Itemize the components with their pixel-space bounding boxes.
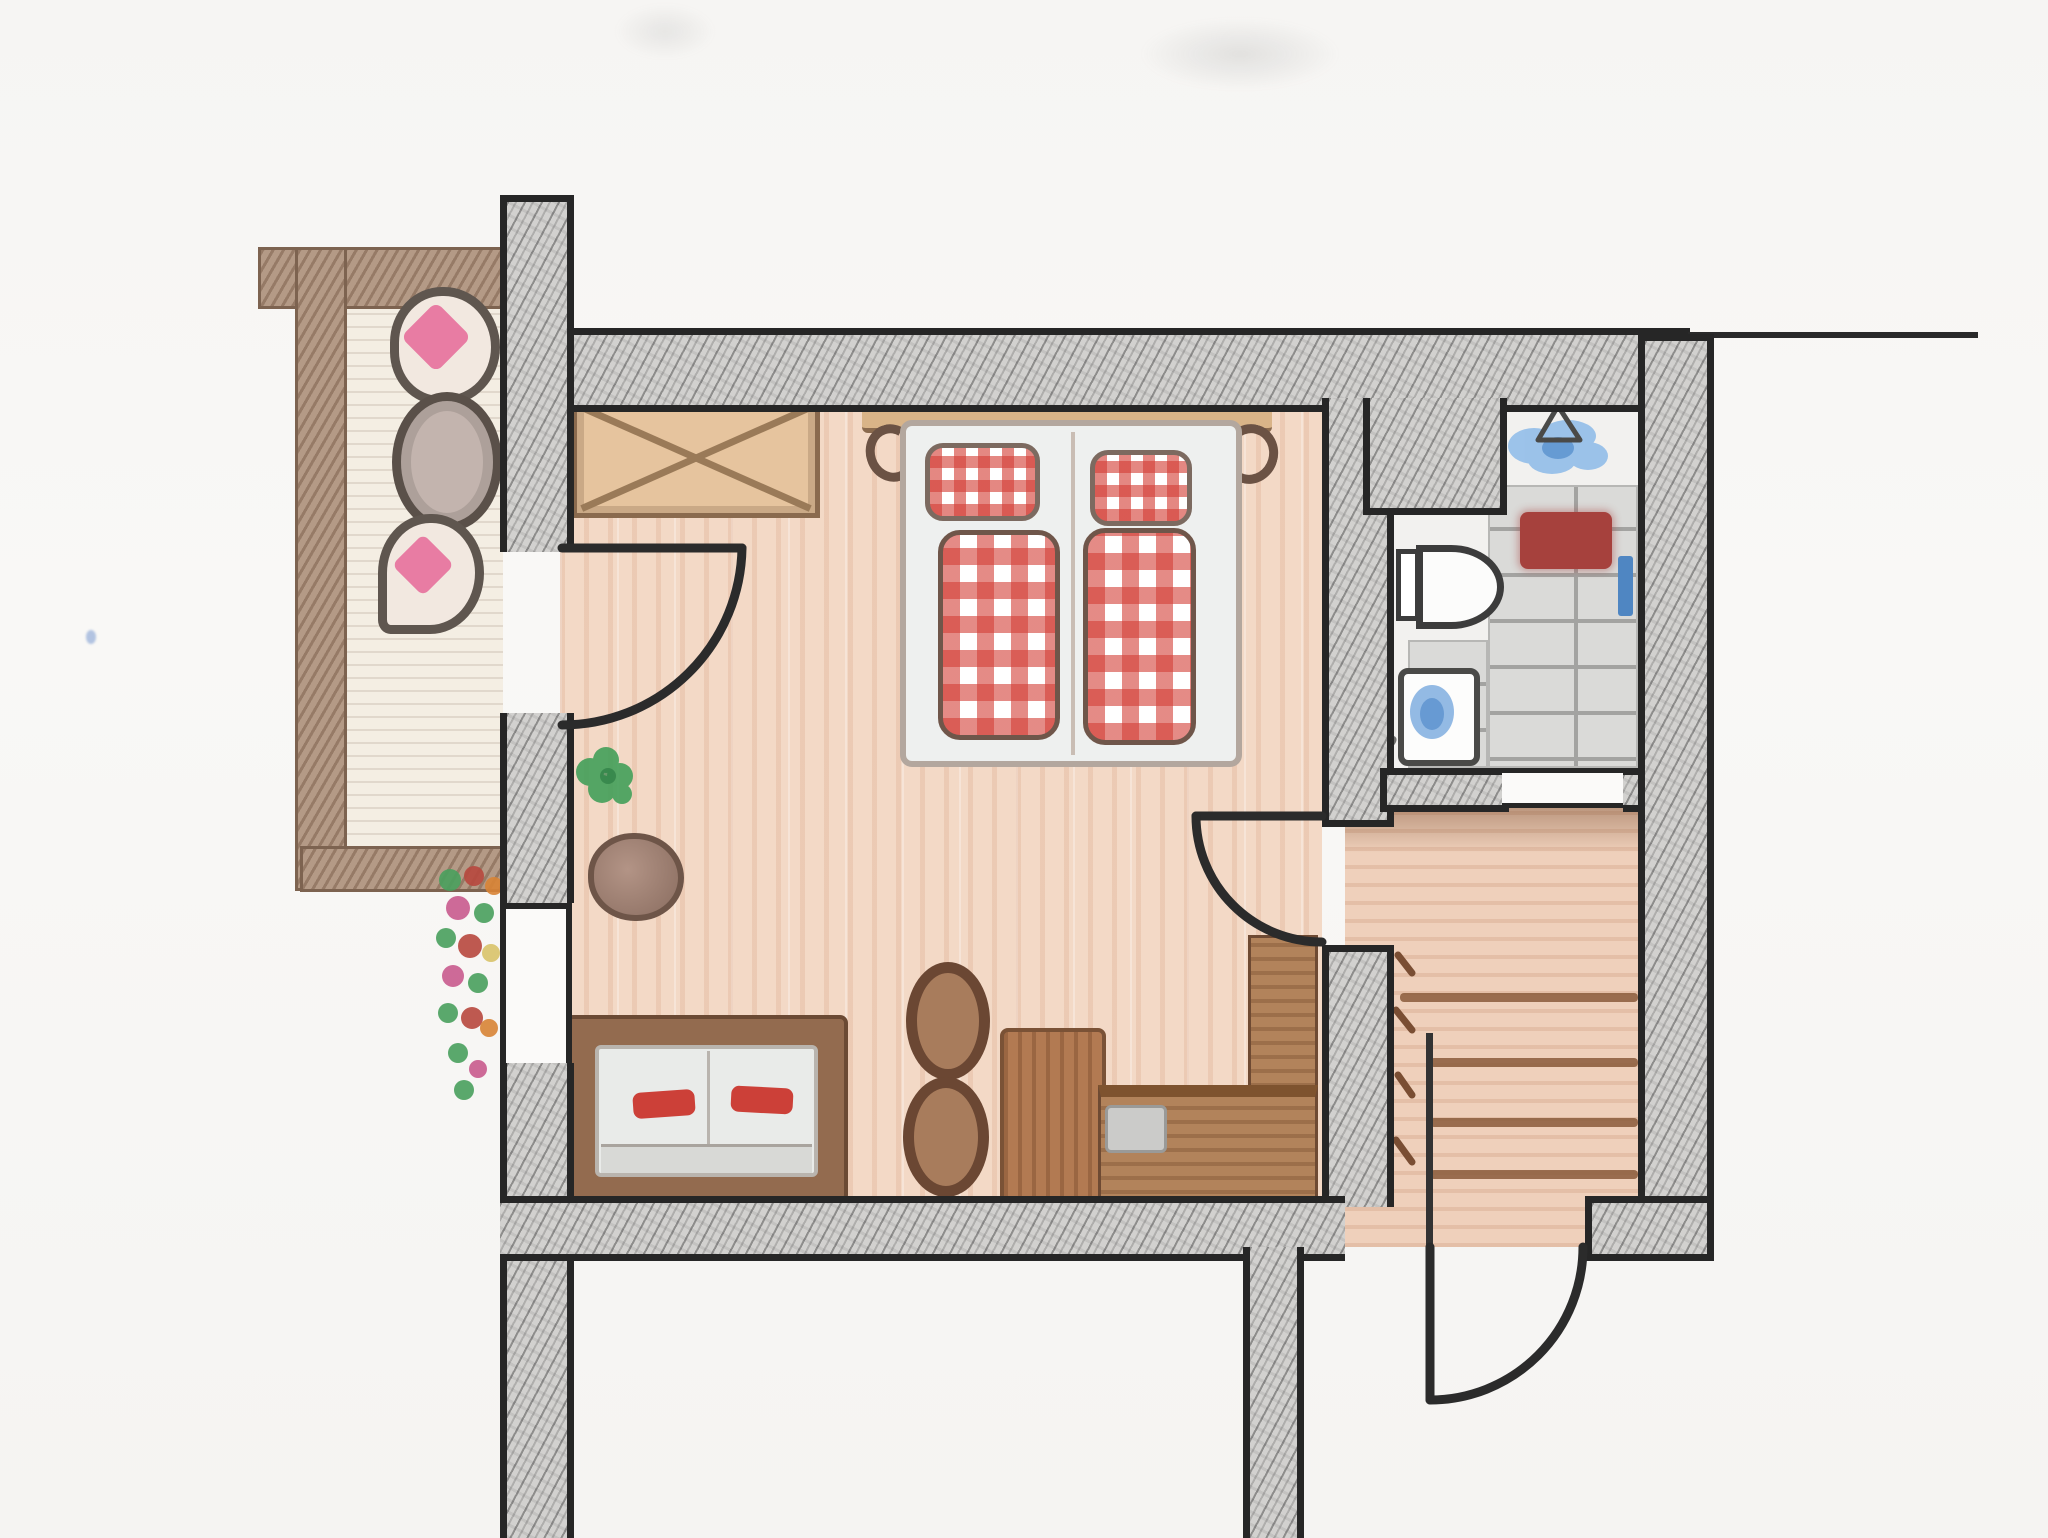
wall-top (555, 328, 1690, 412)
stair-step (1430, 1118, 1638, 1127)
blue-pencil-dot (86, 630, 96, 644)
wardrobe (572, 398, 820, 518)
balcony-seat-bottom (378, 514, 484, 634)
bed-duvet (1083, 528, 1196, 745)
wall-middle-lower (1322, 945, 1394, 1207)
wall-left-upper (500, 195, 574, 552)
bed-center-divider (1071, 432, 1075, 755)
bed-pillow (1090, 450, 1192, 526)
stair-step (1430, 1170, 1638, 1179)
wall-right (1638, 334, 1714, 1261)
stair-step (1400, 993, 1638, 1002)
bathroom-wall-bottom-right (1623, 768, 1645, 812)
sofa (565, 1015, 848, 1203)
sofa-front-edge (601, 1144, 812, 1173)
bathroom-wall-block (1363, 398, 1507, 515)
wall-extension-line (1688, 332, 1978, 338)
window (500, 903, 572, 1075)
wall-below-vertical (1243, 1247, 1304, 1538)
bath-mat (1520, 512, 1612, 569)
balcony-table (392, 392, 502, 532)
pink-cushion (392, 534, 454, 596)
round-chair (906, 962, 990, 1080)
wall-bottom-right-stub (1585, 1196, 1714, 1261)
pink-cushion (401, 302, 472, 373)
stone-decoration (588, 833, 684, 921)
bedroom-plant (570, 742, 640, 810)
stair-step (1430, 1058, 1638, 1067)
wall-bottom (500, 1196, 1345, 1261)
balcony-rail-left (295, 247, 347, 891)
sink (1398, 668, 1480, 766)
pencil-smudge (615, 4, 715, 59)
balcony-seat-top (390, 287, 500, 405)
stair-stringer-line (1426, 1033, 1433, 1247)
bathroom-door-opening (1502, 768, 1623, 808)
blue-towel (1618, 556, 1633, 616)
bed-pillow (925, 443, 1040, 521)
entrance-door (1430, 1247, 1583, 1400)
table (1000, 1028, 1106, 1204)
red-cushion (632, 1089, 696, 1119)
round-chair (903, 1077, 989, 1197)
floor-plan (0, 0, 2048, 1538)
wall-left-middle (500, 713, 574, 903)
bathroom-wall-bottom-left (1380, 768, 1509, 812)
red-cushion (730, 1085, 793, 1114)
bed-duvet (938, 530, 1060, 740)
wall-left-lower (500, 1063, 574, 1538)
stair-balustrade-marks (1390, 945, 1420, 1200)
pencil-smudge (1140, 18, 1340, 90)
bench-cushion (1105, 1105, 1167, 1153)
